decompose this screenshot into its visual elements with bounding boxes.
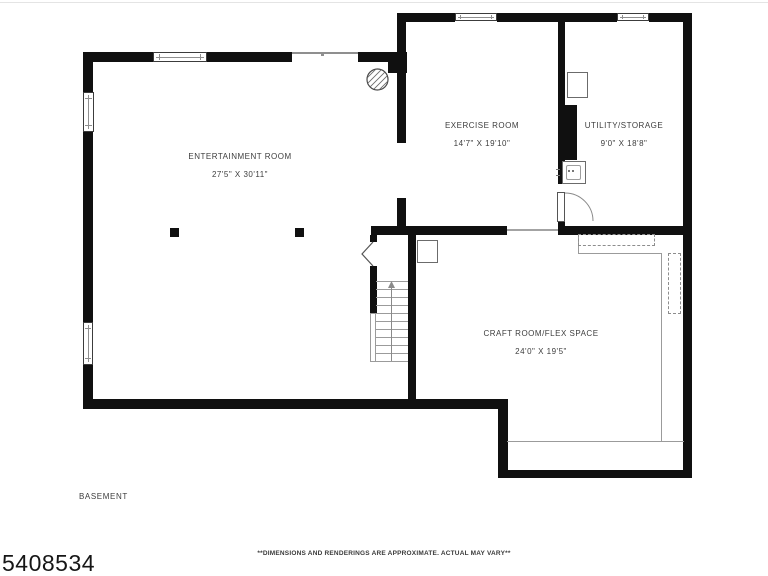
room-dimensions: 27'5" X 30'11" — [130, 170, 350, 179]
sink-drain-dot — [568, 170, 570, 172]
stair-left-wall-upper — [370, 235, 377, 242]
window-pane — [88, 325, 89, 362]
ent-left-window-upper — [83, 92, 94, 132]
stair-tread — [376, 281, 408, 282]
stair-tread — [376, 289, 408, 290]
ledge-line-horizontal — [507, 441, 684, 442]
support-column-b — [295, 228, 304, 237]
ent-left-window-lower — [83, 322, 93, 365]
craft-bottom-wall — [498, 470, 692, 478]
window-divider — [85, 328, 91, 329]
utility-door-symbol — [558, 193, 594, 222]
ent-left-wall-upper — [83, 52, 93, 92]
water-heater-unit — [417, 240, 438, 263]
window-divider — [643, 15, 644, 19]
window-divider — [200, 54, 201, 60]
ent-top-window — [153, 52, 207, 62]
page-top-border — [0, 2, 768, 3]
stair-tread — [376, 313, 408, 314]
ent-top-wall-left — [83, 52, 153, 62]
ent-top-opening-line — [292, 52, 358, 54]
room-dimensions: 14'7" X 19'10" — [402, 139, 562, 148]
exercise-top-window — [455, 13, 497, 21]
top-wall-exercise-right — [497, 13, 563, 22]
window-divider — [622, 15, 623, 19]
window-divider — [85, 358, 91, 359]
window-divider — [460, 15, 461, 19]
craft-opening-line — [507, 229, 558, 231]
sink-drain-dot — [572, 170, 574, 172]
craft-left-wall — [498, 399, 508, 478]
room-name: CRAFT ROOM/FLEX SPACE — [441, 329, 641, 338]
room-dimensions: 9'0" X 18'8" — [566, 139, 682, 148]
room-label-craft: CRAFT ROOM/FLEX SPACE 24'0" X 19'5" — [441, 329, 641, 356]
ent-top-wall-mid — [207, 52, 292, 62]
room-name: UTILITY/STORAGE — [566, 121, 682, 130]
stair-door-symbol — [362, 242, 373, 266]
top-wall-utility-left — [563, 13, 617, 22]
soffit-line-horizontal — [578, 253, 662, 254]
window-divider — [159, 54, 160, 60]
symbol-overlay — [0, 0, 768, 576]
window-pane — [458, 17, 494, 18]
room-label-entertainment: ENTERTAINMENT ROOM 27'5" X 30'11" — [130, 152, 350, 179]
sink-faucet-tick — [556, 175, 560, 176]
sink-faucet-tick — [556, 169, 560, 170]
stair-tread — [376, 353, 408, 354]
window-divider — [85, 125, 92, 126]
stair-tread — [376, 297, 408, 298]
stair-tread — [376, 361, 408, 362]
dashed-area-top — [578, 234, 655, 246]
ent-bottom-wall — [83, 399, 508, 409]
room-name: EXERCISE ROOM — [402, 121, 562, 130]
stair-tread — [376, 345, 408, 346]
ent-top-opening-tick — [321, 52, 324, 56]
window-pane — [88, 95, 89, 129]
window-divider — [85, 98, 92, 99]
room-label-utility: UTILITY/STORAGE 9'0" X 18'8" — [566, 121, 682, 148]
room-dimensions: 24'0" X 19'5" — [441, 347, 641, 356]
mid-wall-west — [371, 226, 507, 235]
disclaimer-text: **DIMENSIONS AND RENDERINGS ARE APPROXIM… — [0, 550, 768, 557]
top-wall-exercise-left — [397, 13, 455, 22]
ent-left-wall-mid — [83, 132, 93, 322]
stair-tread — [376, 329, 408, 330]
utility-sink-basin — [566, 165, 581, 180]
stair-tread — [376, 305, 408, 306]
window-pane — [156, 57, 204, 58]
dashed-area-right — [668, 253, 681, 314]
room-name: ENTERTAINMENT ROOM — [130, 152, 350, 161]
stair-tread — [376, 337, 408, 338]
support-column-a — [170, 228, 179, 237]
utility-top-window — [617, 13, 649, 21]
basement-floor-plan: ENTERTAINMENT ROOM 27'5" X 30'11" EXERCI… — [0, 0, 768, 576]
window-divider — [491, 15, 492, 19]
room-label-exercise: EXERCISE ROOM 14'7" X 19'10" — [402, 121, 562, 148]
floor-title: BASEMENT — [79, 492, 128, 501]
right-exterior-wall — [683, 13, 692, 478]
stair-right-wall — [408, 231, 416, 403]
ledge-line-vertical — [661, 253, 662, 442]
furnace-unit — [567, 72, 588, 98]
stair-tread — [376, 321, 408, 322]
